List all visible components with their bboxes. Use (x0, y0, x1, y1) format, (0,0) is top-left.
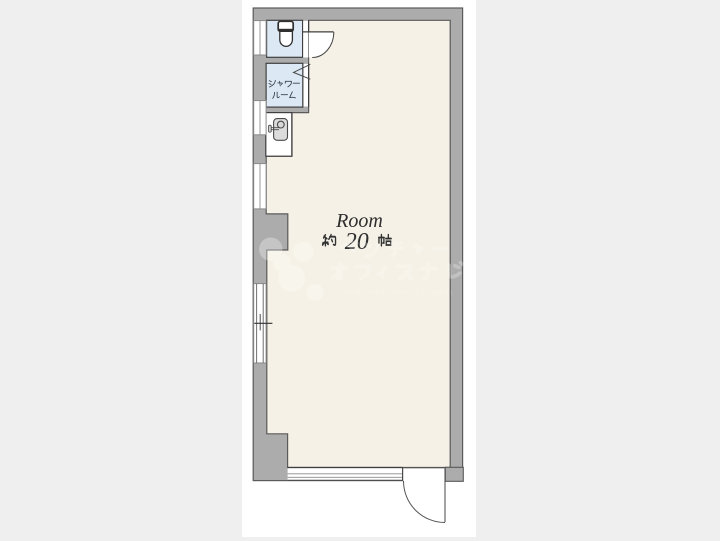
svg-text:VENTURE OFFICE NAVI: VENTURE OFFICE NAVI (344, 290, 455, 297)
